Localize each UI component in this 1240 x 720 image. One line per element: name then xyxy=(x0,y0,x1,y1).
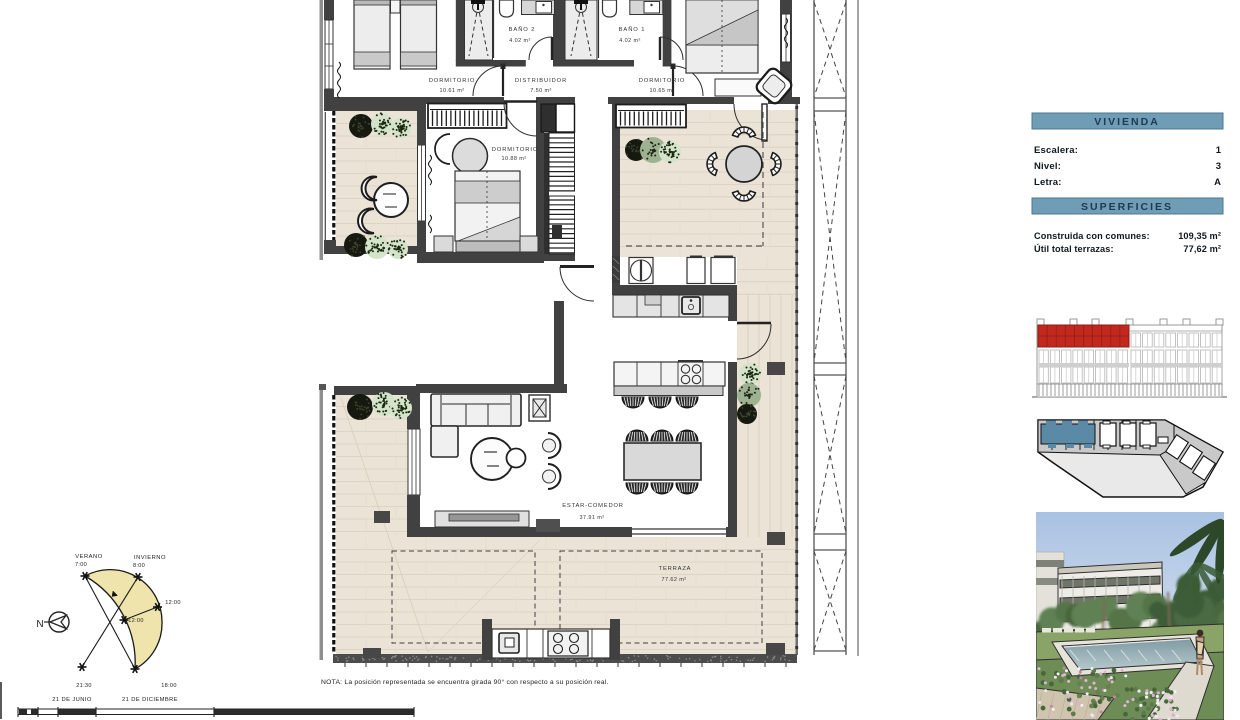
svg-text:Construida con comunes:: Construida con comunes: xyxy=(1034,231,1150,241)
svg-text:SUPERFICIES: SUPERFICIES xyxy=(1081,201,1173,213)
svg-text:DISTRIBUIDOR: DISTRIBUIDOR xyxy=(515,78,567,84)
svg-text:37.91 m²: 37.91 m² xyxy=(580,515,605,521)
svg-text:N: N xyxy=(36,619,43,630)
svg-text:VERANO: VERANO xyxy=(75,554,102,560)
svg-text:8:00: 8:00 xyxy=(133,563,145,569)
svg-text:109,35 m²: 109,35 m² xyxy=(1178,231,1221,241)
svg-text:DORMITORIO: DORMITORIO xyxy=(492,147,539,153)
svg-text:4.02 m²: 4.02 m² xyxy=(509,38,530,44)
svg-text:BAÑO 2: BAÑO 2 xyxy=(509,26,536,33)
svg-text:Letra:: Letra: xyxy=(1034,177,1062,188)
svg-text:BAÑO 1: BAÑO 1 xyxy=(619,26,646,33)
svg-text:Útil total terrazas:: Útil total terrazas: xyxy=(1034,243,1114,254)
svg-text:NOTA: La posición representada: NOTA: La posición representada se encuen… xyxy=(321,678,609,686)
svg-text:77.62 m²: 77.62 m² xyxy=(662,577,687,583)
svg-text:Nivel:: Nivel: xyxy=(1034,161,1061,172)
svg-text:21 DE JUNIO: 21 DE JUNIO xyxy=(52,697,92,703)
svg-text:4.02 m²: 4.02 m² xyxy=(619,38,640,44)
svg-text:3: 3 xyxy=(1216,161,1221,172)
svg-text:7:00: 7:00 xyxy=(75,562,87,568)
svg-text:77,62 m²: 77,62 m² xyxy=(1183,244,1221,254)
svg-text:INVIERNO: INVIERNO xyxy=(134,555,166,561)
svg-text:7.50 m²: 7.50 m² xyxy=(530,88,551,94)
svg-text:10.61 m²: 10.61 m² xyxy=(440,88,465,94)
svg-text:DORMITORIO: DORMITORIO xyxy=(639,78,686,84)
svg-text:18:00: 18:00 xyxy=(161,683,177,689)
svg-text:10.65 m²: 10.65 m² xyxy=(650,88,675,94)
svg-text:DORMITORIO: DORMITORIO xyxy=(429,78,476,84)
svg-text:VIVIENDA: VIVIENDA xyxy=(1094,116,1160,128)
svg-text:A: A xyxy=(1214,177,1221,188)
svg-text:Escalera:: Escalera: xyxy=(1034,145,1078,156)
svg-text:TERRAZA: TERRAZA xyxy=(659,566,692,572)
svg-text:10.88 m²: 10.88 m² xyxy=(502,156,527,162)
svg-text:1: 1 xyxy=(1216,145,1222,156)
svg-text:21:30: 21:30 xyxy=(76,683,92,689)
svg-text:21 DE DICIEMBRE: 21 DE DICIEMBRE xyxy=(122,697,178,703)
svg-text:12:00: 12:00 xyxy=(165,600,181,606)
svg-text:12:00: 12:00 xyxy=(128,618,144,624)
svg-text:ESTAR-COMEDOR: ESTAR-COMEDOR xyxy=(562,503,624,509)
